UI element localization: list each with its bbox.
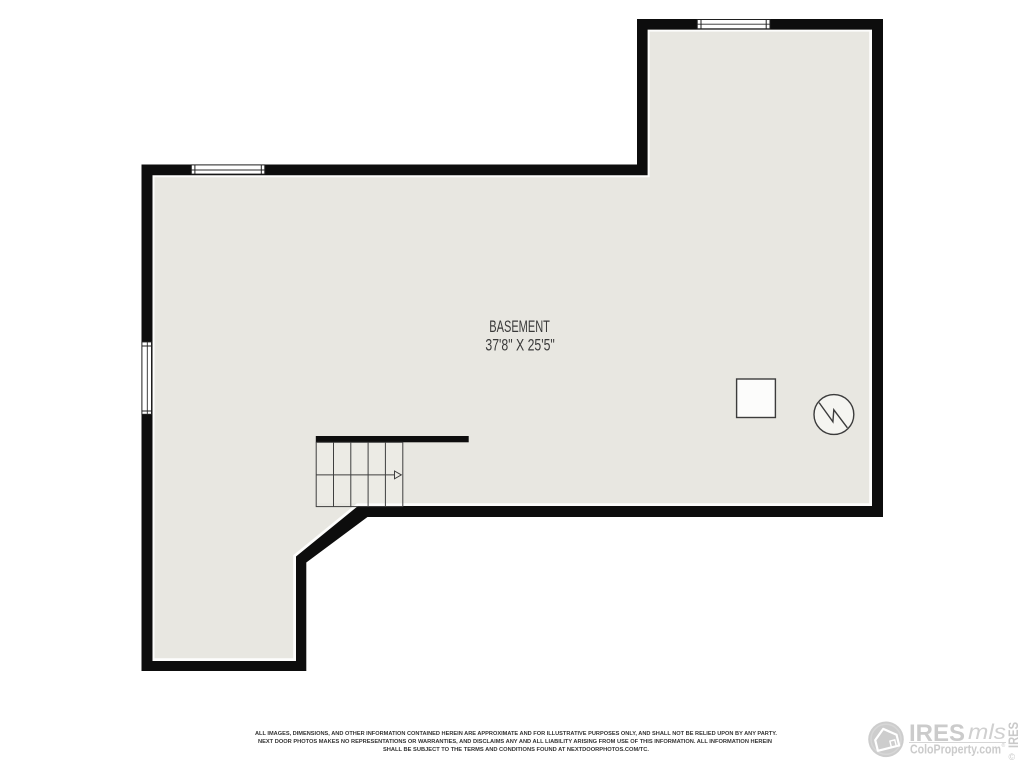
svg-text:ColoProperty.com: ColoProperty.com: [910, 742, 1001, 756]
svg-text:NEXT DOOR PHOTOS MAKES NO REPR: NEXT DOOR PHOTOS MAKES NO REPRESENTATION…: [258, 739, 772, 745]
svg-text:37'8" X 25'5": 37'8" X 25'5": [485, 336, 555, 354]
svg-text:mls: mls: [968, 721, 1007, 744]
svg-text:IRES: IRES: [1005, 722, 1021, 748]
svg-text:©: ©: [1009, 752, 1016, 762]
svg-text:BASEMENT: BASEMENT: [489, 318, 550, 336]
svg-text:ALL IMAGES, DIMENSIONS, AND OT: ALL IMAGES, DIMENSIONS, AND OTHER INFORM…: [255, 731, 777, 737]
svg-text:SHALL BE SUBJECT TO THE TERMS: SHALL BE SUBJECT TO THE TERMS AND CONDIT…: [383, 747, 649, 753]
